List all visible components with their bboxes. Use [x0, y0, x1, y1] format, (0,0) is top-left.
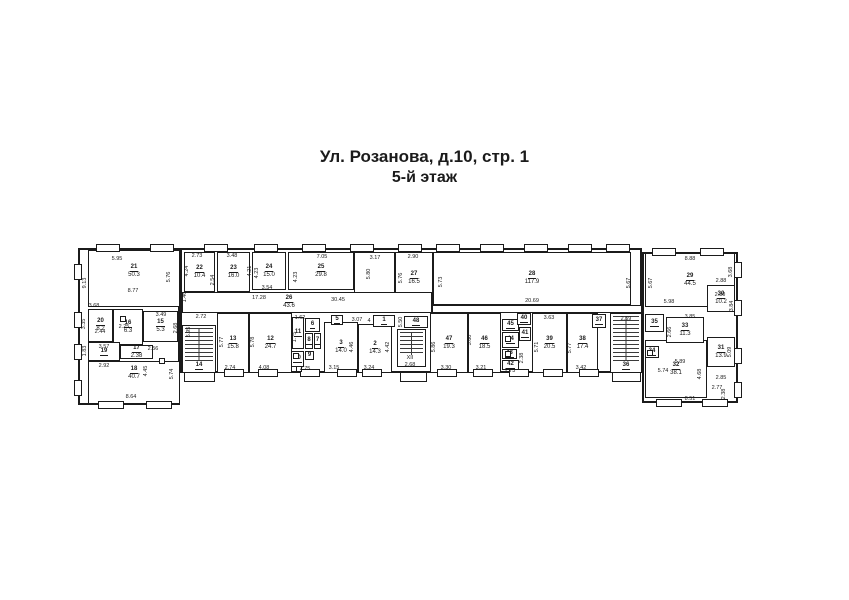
- entrance-porch: [400, 373, 427, 382]
- window-marker: [524, 244, 548, 252]
- dimension-label: 2.68: [173, 323, 179, 334]
- fixture-icon: [505, 336, 511, 342]
- dimension-label: 3.68: [728, 267, 734, 278]
- stair-hatch: [400, 332, 423, 355]
- dimension-label: 3.07: [352, 317, 363, 323]
- room-number: 21: [130, 264, 139, 272]
- dimension-label: 3.30: [441, 365, 452, 371]
- room-number: 1: [381, 317, 386, 325]
- dimension-label: 5.95: [112, 256, 123, 262]
- room-area: 40.7: [128, 374, 140, 381]
- dimension-label: 3.84: [729, 301, 735, 312]
- dimension-label: 1.75: [292, 332, 298, 343]
- dimension-label: 4: [367, 318, 370, 324]
- dimension-label: 2.74: [225, 365, 236, 371]
- dimension-label: 5.76: [398, 273, 404, 284]
- room-area: 18.5: [479, 344, 491, 351]
- dimension-label: 20.69: [525, 298, 539, 304]
- window-marker: [146, 401, 172, 409]
- room-area: 10.2: [715, 299, 727, 306]
- room-number: 3: [338, 340, 343, 348]
- room-area: 10.4: [194, 273, 206, 280]
- room-41: 41: [519, 327, 531, 341]
- window-marker: [543, 369, 563, 377]
- window-marker: [98, 401, 124, 409]
- room-label: 45: [503, 320, 518, 330]
- room-number: 12: [266, 336, 275, 344]
- room-number: 9: [307, 352, 312, 359]
- room-label: 28117.9: [434, 253, 630, 304]
- room-area: 24.7: [265, 344, 277, 351]
- dimension-label: 30.45: [331, 297, 345, 303]
- room-label: 5: [332, 316, 342, 324]
- room-number: 39: [545, 336, 554, 344]
- dimension-label: 3.21: [476, 365, 487, 371]
- dimension-label: 5.09: [727, 347, 733, 358]
- room-label: 37: [593, 315, 605, 327]
- window-marker: [436, 244, 460, 252]
- dimension-label: 3.85: [685, 314, 696, 320]
- room-label: 36: [611, 314, 641, 372]
- window-marker: [656, 399, 682, 407]
- room-area: 38.1: [670, 370, 682, 377]
- dimension-label: 3.54: [262, 285, 273, 291]
- room-40: 40: [517, 313, 531, 325]
- room-label: 7: [315, 334, 320, 348]
- room-area: 14.3: [369, 349, 381, 356]
- room-label: 41: [520, 328, 530, 340]
- room-37: 37: [592, 314, 606, 328]
- dimension-label: 2.56: [148, 346, 159, 352]
- room-number: 28: [528, 271, 537, 279]
- room-label: 48: [405, 317, 427, 327]
- dimension-label: 2.85: [716, 375, 727, 381]
- dimension-label: 5.50: [398, 317, 404, 328]
- window-marker: [150, 244, 174, 252]
- dimension-label: 8.88: [685, 256, 696, 262]
- dimension-label: 1.83: [82, 346, 88, 357]
- room-number: 8: [306, 337, 311, 345]
- fixture-icon: [120, 316, 126, 322]
- room-area: 14.0: [335, 348, 347, 355]
- room-area: 15.8: [227, 344, 239, 351]
- room-area: 44.5: [684, 281, 696, 288]
- window-marker: [74, 264, 82, 280]
- room-number: 35: [650, 319, 659, 327]
- dimension-label: 17.28: [252, 295, 266, 301]
- room-area: 13.9: [715, 353, 727, 360]
- dimension-label: 5.76: [166, 272, 172, 283]
- window-marker: [302, 244, 326, 252]
- room-number: 37: [595, 317, 604, 325]
- dimension-label: 5.77: [567, 343, 573, 354]
- window-marker: [606, 244, 630, 252]
- room-26: 2643.6: [182, 292, 432, 313]
- room-number: 38: [578, 336, 587, 344]
- room-number: 7: [315, 337, 320, 345]
- dimension-label: 2.75: [300, 366, 311, 372]
- dimension-label: 3.49: [156, 312, 167, 318]
- dimension-label: 3.17: [370, 255, 381, 261]
- dimension-label: 2.44: [95, 329, 106, 335]
- window-marker: [337, 369, 357, 377]
- dimension-label: 5.67: [626, 278, 632, 289]
- room-label: 40: [518, 314, 530, 324]
- room: [432, 305, 642, 313]
- entrance-porch: [612, 373, 641, 382]
- room-5: 5: [331, 315, 343, 325]
- dimension-label: 2.25: [119, 324, 130, 330]
- room-label: 208.2: [89, 310, 112, 341]
- room-number: 31: [717, 345, 726, 353]
- room-number: 26: [285, 295, 294, 303]
- window-marker: [480, 244, 504, 252]
- window-marker: [96, 244, 120, 252]
- window-marker: [254, 244, 278, 252]
- room-6: 6: [305, 318, 320, 332]
- room-area: 20.5: [544, 344, 556, 351]
- room-label: 4618.5: [469, 314, 500, 372]
- dimension-label: 4.46: [349, 342, 355, 353]
- window-marker: [568, 244, 592, 252]
- room-8: 8: [305, 333, 313, 349]
- window-marker: [652, 248, 676, 256]
- room-area: 15.0: [263, 272, 275, 279]
- room-number: 5: [334, 316, 339, 324]
- room-number: 29: [686, 273, 695, 281]
- room-number: 25: [317, 264, 326, 272]
- dimension-label: 5.74: [169, 369, 175, 380]
- room-number: 2: [372, 341, 377, 349]
- room-1: 1: [373, 315, 395, 327]
- dimension-label: 2.54: [210, 275, 216, 286]
- room-number: 14: [195, 362, 204, 370]
- dimension-label: 4.45: [143, 366, 149, 377]
- dimension-label: 2.80: [715, 292, 726, 298]
- dimension-label: 5.86: [431, 342, 437, 353]
- dimension-label: 5.71: [534, 342, 540, 353]
- room-label: 2643.6: [165, 293, 413, 312]
- dimension-label: 4.21: [247, 266, 253, 277]
- dimension-label: 5.89: [675, 359, 686, 365]
- room-number: 40: [520, 315, 529, 323]
- dimension-label: 3.35: [81, 319, 87, 330]
- dimension-label: 3.68: [89, 303, 100, 309]
- dimension-label: 2.88: [716, 278, 727, 284]
- room-area: 19.3: [443, 344, 455, 351]
- dimension-label: 5.80: [366, 269, 372, 280]
- window-marker: [398, 244, 422, 252]
- dimension-label: 4.23: [293, 272, 299, 283]
- room-area: 17.4: [577, 344, 589, 351]
- dimension-label: 3.15: [329, 365, 340, 371]
- dimension-label: 9.13: [82, 278, 88, 289]
- room-number: 22: [195, 265, 204, 273]
- dimension-label: 5.73: [438, 277, 444, 288]
- dimension-label: 1.62: [295, 315, 306, 321]
- floor-plan-page: Ул. Розанова, д.10, стр. 1 5-й этаж 2150…: [0, 0, 849, 600]
- stairwell-36: 36: [610, 313, 642, 373]
- room-number: 15: [156, 319, 165, 327]
- room-area: 29.8: [315, 272, 327, 279]
- room-area: 16.0: [228, 273, 240, 280]
- window-marker: [74, 380, 82, 396]
- room-number: 13: [229, 336, 238, 344]
- fixture-icon: [647, 350, 653, 356]
- dimension-label: XII: [407, 355, 414, 361]
- room-area: 5.3: [156, 327, 164, 334]
- dimension-label: 5.78: [250, 337, 256, 348]
- room-number: 48: [412, 318, 421, 326]
- dimension-label: 3.57: [99, 344, 110, 350]
- window-marker: [734, 262, 742, 278]
- room-7: 7: [314, 333, 321, 349]
- window-marker: [74, 344, 82, 360]
- dimension-label: 2.90: [408, 254, 419, 260]
- room-9: 9: [305, 351, 314, 360]
- room-label: 1840.7: [89, 353, 179, 394]
- dimension-label: 5.74: [658, 368, 669, 374]
- dimension-label: 2.59: [621, 316, 632, 322]
- room-label: 1: [374, 316, 394, 326]
- fixture-icon: [293, 353, 299, 359]
- dimension-label: 3.48: [227, 253, 238, 259]
- dimension-label: 8.64: [126, 394, 137, 400]
- room-area: 11.3: [679, 331, 690, 338]
- room-label: 6: [306, 319, 319, 331]
- dimension-label: 5.60: [467, 335, 473, 346]
- dimension-label: 5.95: [186, 327, 192, 338]
- room-number: 23: [229, 265, 238, 273]
- window-marker: [702, 399, 728, 407]
- dimension-label: 4.08: [259, 365, 270, 371]
- dimension-label: 1.46: [182, 292, 188, 303]
- dimension-label: 5.67: [648, 278, 654, 289]
- room-number: 36: [622, 362, 631, 370]
- room-number: 6: [310, 321, 315, 329]
- room-number: 27: [410, 271, 419, 279]
- entrance-porch: [184, 373, 215, 382]
- dimension-label: 5.98: [664, 299, 675, 305]
- room-area: 50.3: [128, 272, 140, 279]
- room-number: 46: [480, 336, 489, 344]
- window-marker: [734, 348, 742, 364]
- dimension-label: 2.66: [667, 327, 673, 338]
- window-marker: [700, 248, 724, 256]
- window-marker: [734, 382, 742, 398]
- dimension-label: 2.73: [505, 368, 516, 374]
- floor-plan: 2150.32210.42316.02415.02529.82716.52811…: [0, 0, 849, 600]
- room-label: 8: [306, 334, 312, 348]
- dimension-label: 2.68: [405, 362, 416, 368]
- dimension-label: 4.42: [385, 342, 391, 353]
- room-number: 20: [96, 318, 105, 326]
- dimension-label: 2.38: [721, 389, 727, 400]
- window-marker: [350, 244, 374, 252]
- room-area: 16.5: [408, 279, 420, 286]
- room-number: 24: [265, 264, 274, 272]
- dimension-label: 3.24: [364, 365, 375, 371]
- dimension-label: 7.05: [317, 254, 328, 260]
- window-marker: [204, 244, 228, 252]
- room-number: 33: [681, 323, 690, 331]
- dimension-label: 8.51: [685, 396, 696, 402]
- dimension-label: 4.68: [697, 369, 703, 380]
- room-label: 35: [646, 315, 663, 331]
- dimension-label: 2.72: [196, 314, 207, 320]
- fixture-icon: [505, 351, 511, 357]
- window-marker: [734, 300, 742, 316]
- room-area: 117.9: [525, 279, 540, 286]
- dimension-label: 2.92: [99, 363, 110, 369]
- dimension-label: 3.63: [544, 315, 555, 321]
- dimension-label: 5.77: [219, 337, 225, 348]
- dimension-label: 4.24: [184, 266, 190, 277]
- fixture-icon: [159, 358, 165, 364]
- room-label: 1224.7: [250, 314, 291, 372]
- room-area: 43.6: [283, 303, 295, 310]
- dimension-label: 4.23: [254, 268, 260, 279]
- room-number: 47: [445, 336, 454, 344]
- room-20: 208.2: [88, 309, 113, 342]
- room-number: 45: [506, 321, 515, 329]
- room-number: 18: [130, 366, 139, 374]
- room-number: 41: [521, 330, 530, 338]
- dimension-label: 3.42: [576, 365, 587, 371]
- dimension-label: 8.77: [128, 288, 139, 294]
- room-35: 35: [645, 314, 664, 332]
- dimension-label: 2.73: [192, 253, 203, 259]
- room-label: 9: [306, 352, 313, 359]
- dimension-label: 2.38: [519, 353, 525, 364]
- room-48: 48: [404, 316, 428, 328]
